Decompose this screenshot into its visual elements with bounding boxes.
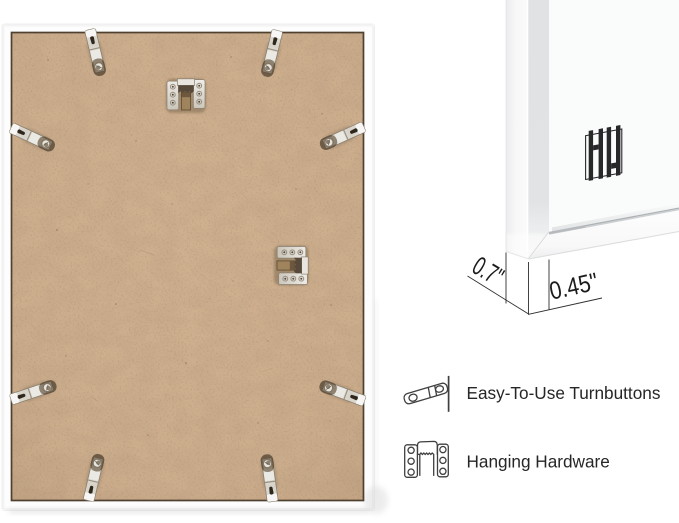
svg-text:0.45": 0.45" bbox=[547, 267, 601, 305]
svg-text:Hanging Hardware: Hanging Hardware bbox=[467, 452, 610, 472]
svg-text:0.7": 0.7" bbox=[467, 251, 508, 292]
svg-text:Easy-To-Use Turnbuttons: Easy-To-Use Turnbuttons bbox=[467, 383, 661, 403]
